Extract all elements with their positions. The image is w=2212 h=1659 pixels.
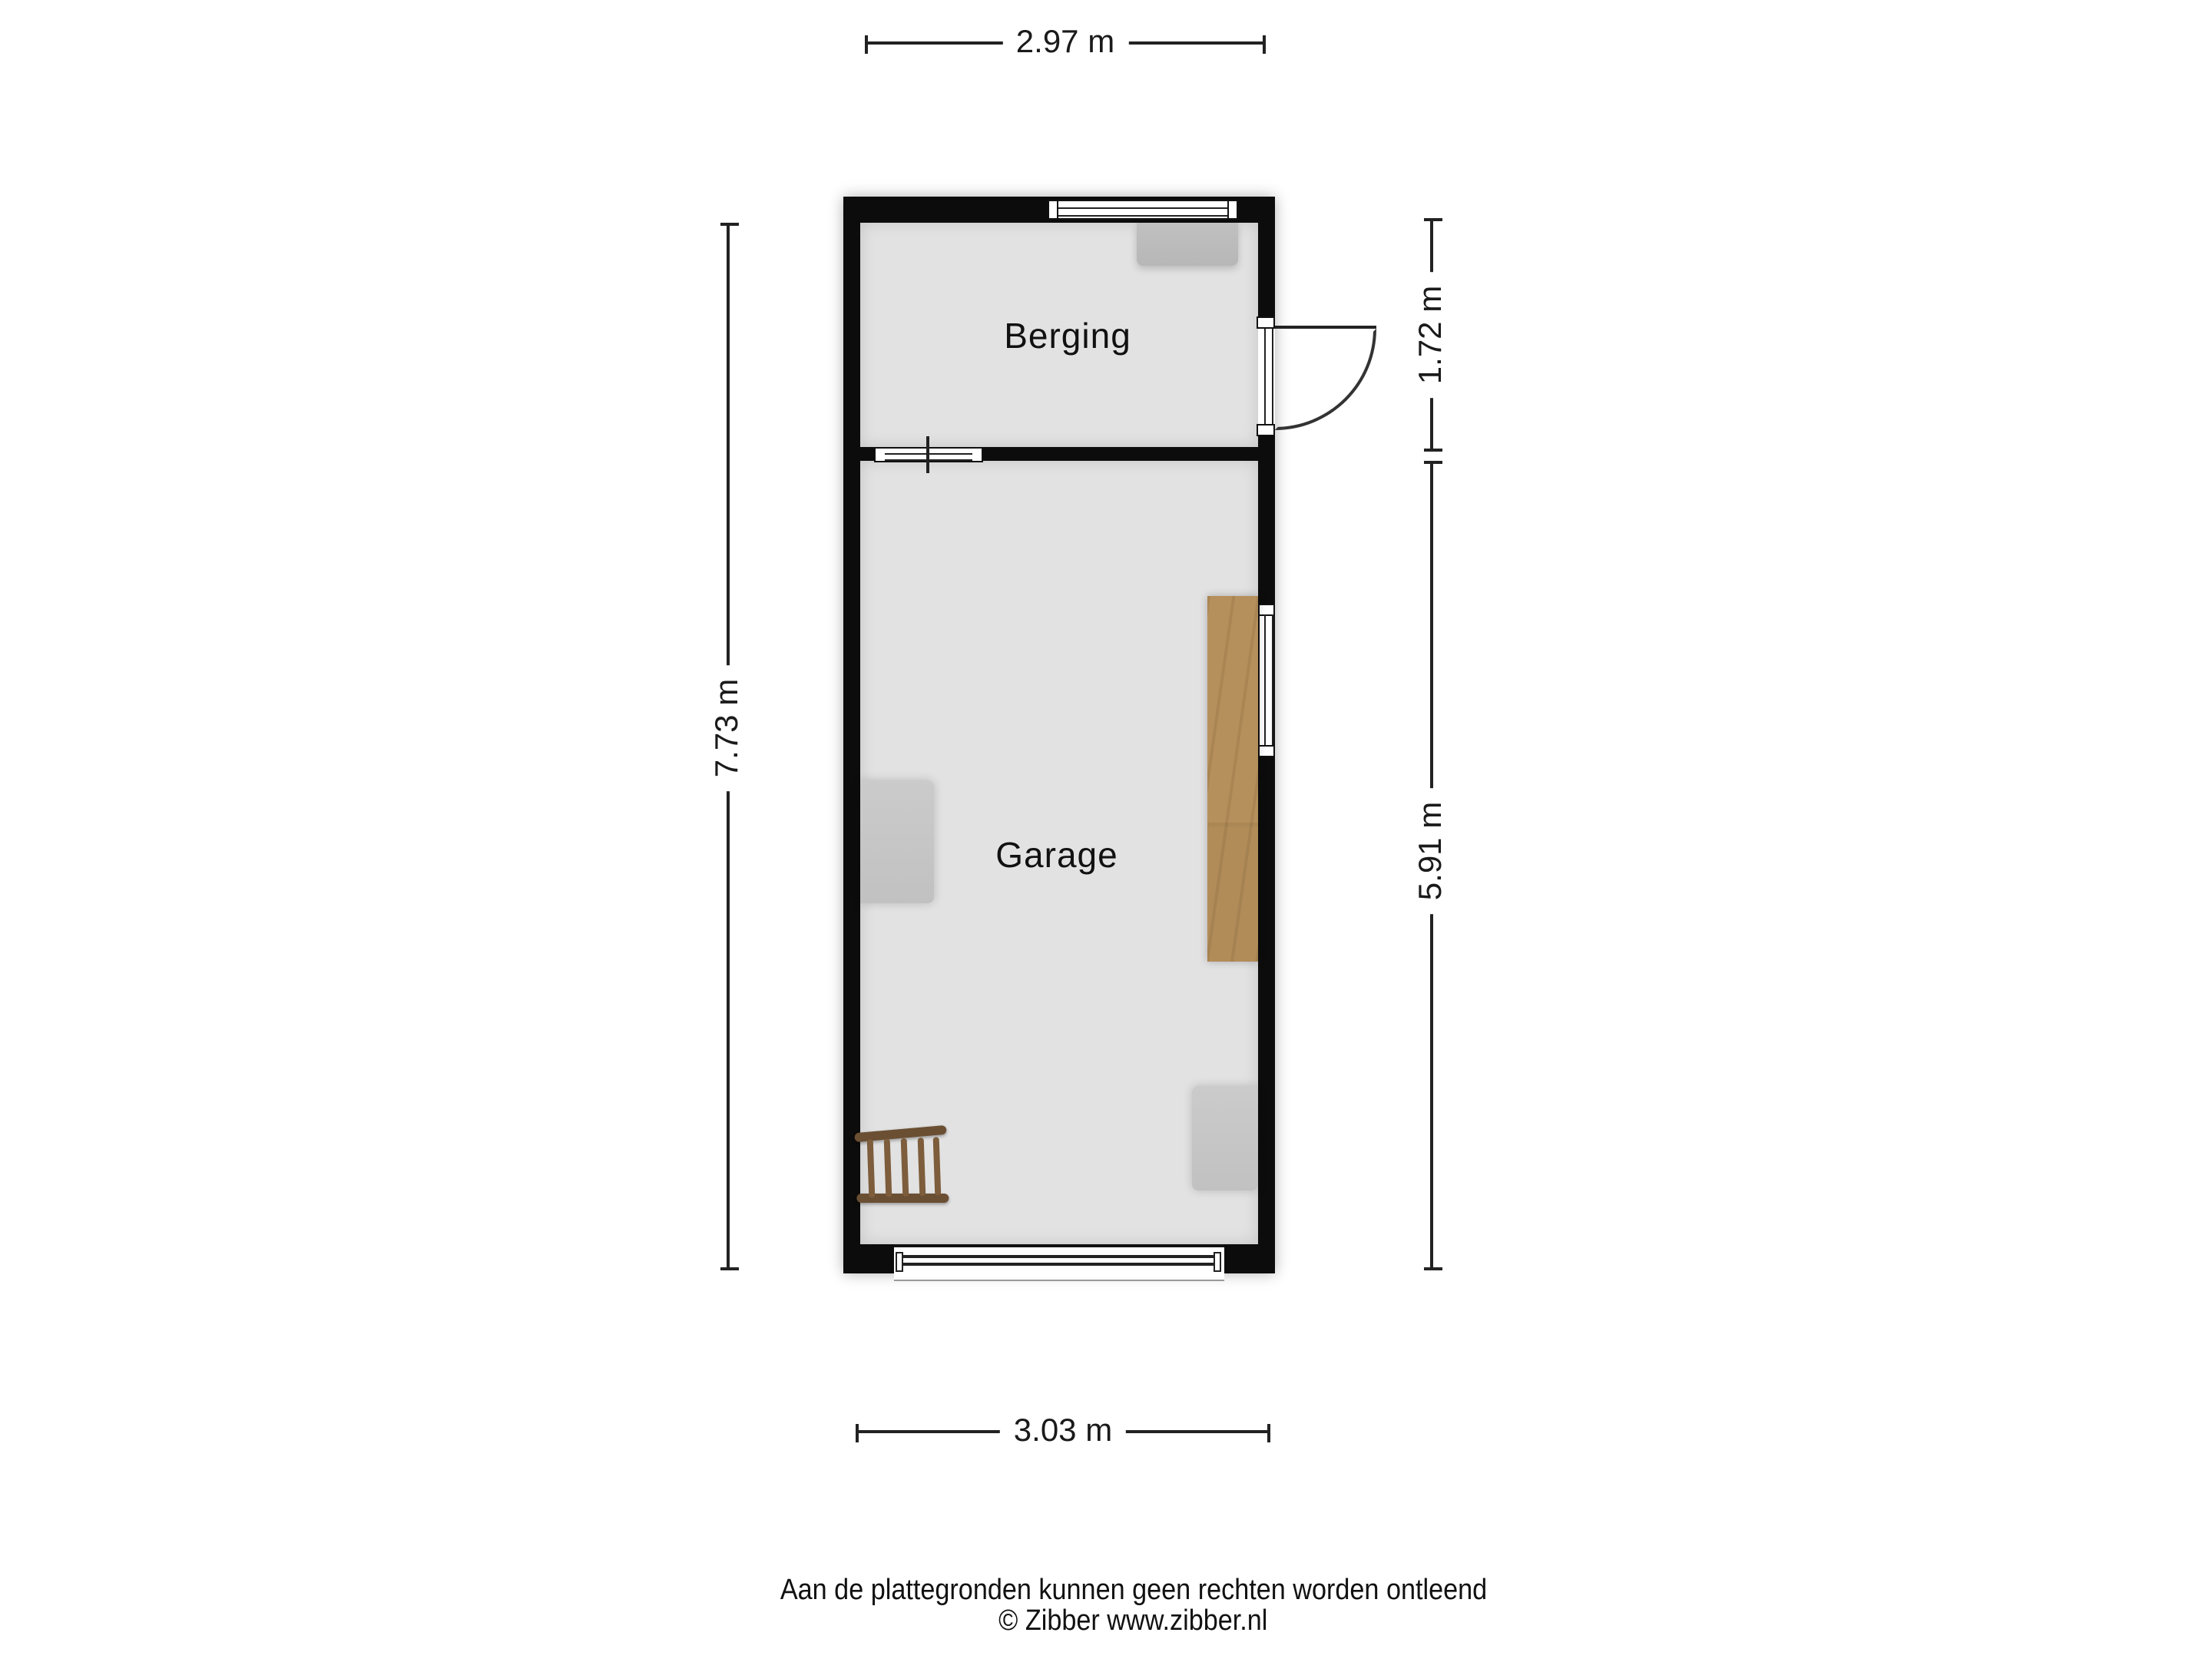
window-frame-cap bbox=[1049, 201, 1058, 218]
dimension-label: 7.73 m bbox=[708, 665, 748, 791]
garage-door-track bbox=[899, 1255, 1218, 1266]
dimension-right-lower: 5.91 m bbox=[1430, 461, 1433, 1270]
berging-door-frame bbox=[1258, 327, 1275, 426]
door-frame-cap bbox=[1257, 424, 1275, 436]
window-frame-cap bbox=[1260, 745, 1273, 756]
page: Berging Garage 2.97 m 3.03 m 7.73 m 1.72… bbox=[0, 0, 2212, 1659]
footer: Aan de plattegronden kunnen geen rechten… bbox=[741, 1576, 1527, 1637]
dimension-tick bbox=[720, 1267, 739, 1270]
dimension-tick bbox=[856, 1424, 859, 1442]
dimension-right-upper: 1.72 m bbox=[1430, 218, 1433, 452]
berging-door-swing-arc bbox=[1275, 329, 1376, 430]
dimension-tick bbox=[1424, 449, 1442, 452]
dimension-label: 1.72 m bbox=[1412, 272, 1452, 398]
window-panes bbox=[1058, 207, 1227, 216]
dimension-bottom: 3.03 m bbox=[856, 1430, 1270, 1433]
window-frame-cap bbox=[1227, 201, 1237, 218]
dimension-tick bbox=[720, 223, 739, 226]
garage-door-jamb bbox=[896, 1252, 903, 1272]
berging-cabinet bbox=[1137, 223, 1238, 266]
ladder-rung bbox=[933, 1137, 942, 1195]
dimension-tick bbox=[1263, 35, 1266, 54]
dimension-tick bbox=[865, 35, 868, 54]
dimension-label: 3.03 m bbox=[1000, 1412, 1126, 1452]
garage-storage-right bbox=[1192, 1086, 1258, 1190]
top-window bbox=[1048, 200, 1238, 220]
dimension-top: 2.97 m bbox=[865, 41, 1266, 45]
window-panes bbox=[1263, 614, 1273, 747]
divider-window-break-line bbox=[926, 436, 929, 473]
workbench bbox=[1207, 596, 1258, 962]
garage-door bbox=[894, 1244, 1224, 1281]
garage-storage-left bbox=[860, 780, 934, 903]
dimension-tick bbox=[1267, 1424, 1270, 1442]
ladder-rung bbox=[867, 1139, 876, 1197]
ladder-rung bbox=[884, 1139, 892, 1197]
ladder-rung bbox=[901, 1138, 909, 1197]
garage-window bbox=[1258, 604, 1275, 757]
garage-door-jamb bbox=[1214, 1252, 1221, 1272]
footer-disclaimer: Aan de plattegronden kunnen geen rechten… bbox=[780, 1576, 1487, 1607]
room-label-garage: Garage bbox=[995, 835, 1118, 876]
floorplan-canvas: Berging Garage 2.97 m 3.03 m 7.73 m 1.72… bbox=[0, 0, 2212, 1659]
dimension-label: 5.91 m bbox=[1412, 788, 1452, 914]
dimension-left: 7.73 m bbox=[727, 223, 730, 1270]
footer-credit: © Zibber www.zibber.nl bbox=[999, 1607, 1268, 1637]
door-frame-lines bbox=[1263, 327, 1273, 426]
ladder bbox=[854, 1123, 949, 1212]
dimension-label: 2.97 m bbox=[1002, 23, 1128, 63]
ladder-rung bbox=[918, 1137, 926, 1196]
door-frame-cap bbox=[1257, 316, 1275, 329]
dimension-tick bbox=[1424, 218, 1442, 221]
dimension-tick bbox=[1424, 1267, 1442, 1270]
room-label-berging: Berging bbox=[1004, 316, 1131, 357]
dimension-tick bbox=[1424, 461, 1442, 464]
